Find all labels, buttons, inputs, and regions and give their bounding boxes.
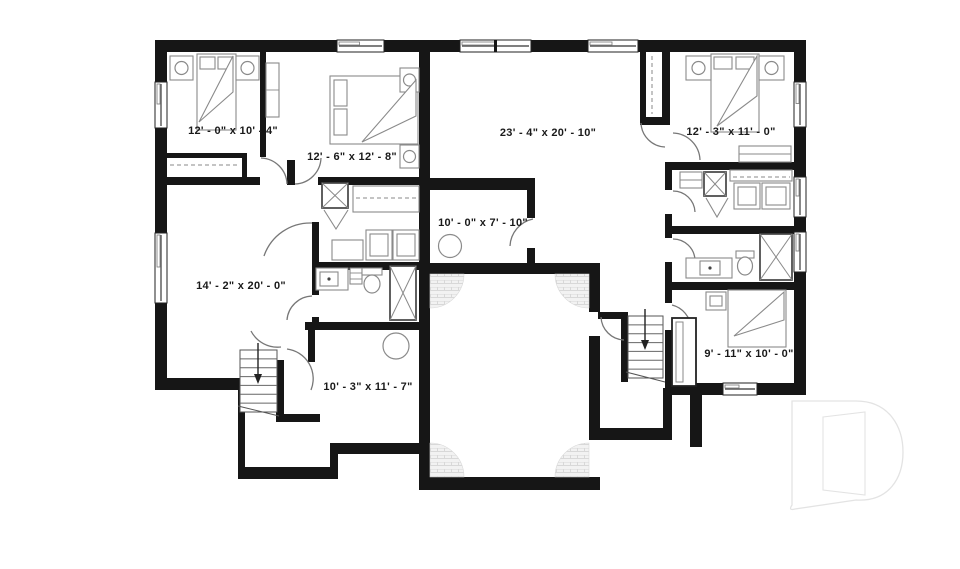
furniture [730,170,792,181]
wall [308,330,315,362]
floor-plan-drawing: 12' - 0" x 10' - 4"12' - 6" x 12' - 8"23… [0,0,960,569]
furniture [334,109,347,135]
wall [794,40,806,82]
wall [665,226,794,234]
sink-drain-dot [327,277,330,280]
furniture [766,187,786,205]
circle-fixture [383,333,409,359]
door-swing-arc [601,317,624,340]
sink-drain-dot [708,266,711,269]
window-sash [157,235,160,267]
wall [384,40,460,52]
wall [242,153,247,177]
furniture [332,240,363,260]
wall [531,40,588,52]
wall [665,330,672,388]
hatch-corner [555,274,589,308]
room-label: 12' - 6" x 12' - 8" [307,151,397,163]
wall [260,52,266,157]
wall [621,312,628,382]
wall [640,52,646,123]
furniture [710,296,722,306]
hatch-corner [430,443,464,477]
wall [155,40,337,52]
window-sash [796,179,799,196]
bifold-door [706,198,728,217]
wall [690,393,702,447]
toilet-icon [364,275,380,293]
wall [794,217,806,232]
toilet-icon [738,257,753,275]
furniture [738,187,756,205]
bifold-door [324,210,348,229]
floor-plan-page: 12' - 0" x 10' - 4"12' - 6" x 12' - 8"23… [0,0,960,569]
room-label: 10' - 0" x 7' - 10" [438,217,528,229]
circle-fixture [765,62,778,75]
wall [590,428,672,440]
wall [287,160,295,185]
wall [419,52,430,263]
hatch-corner [555,443,589,477]
door-swing-arc [287,296,312,320]
wall [640,117,670,125]
wall [155,303,167,390]
window-sash [590,42,612,45]
furniture [353,186,419,212]
furniture [397,234,415,256]
wall [419,263,600,274]
wall [276,414,320,422]
window-sash [339,42,360,45]
wall [155,40,167,82]
furniture [362,268,382,275]
wall [167,177,260,185]
circle-fixture [175,62,188,75]
wall [757,383,806,395]
window-sash [725,385,739,388]
room-label: 12' - 0" x 10' - 4" [188,125,278,137]
wall [665,282,794,290]
wall [589,336,600,440]
circle-fixture [692,62,705,75]
circle-fixture [404,151,416,163]
wall [238,467,338,479]
wall [419,178,535,190]
furniture [370,234,388,256]
wall [589,263,600,312]
wall [527,190,535,218]
wall [330,443,429,454]
wall [305,322,419,330]
wall [167,153,247,158]
wall [527,248,535,263]
wall [155,378,245,390]
room-label: 9' - 11" x 10' - 0" [704,348,793,360]
wall [419,477,600,490]
door-swing-arc [673,239,695,260]
wall [155,128,167,233]
furniture [350,268,362,284]
furniture [714,57,732,69]
room-label: 14' - 2" x 20' - 0" [196,280,286,292]
wall [663,388,672,440]
wall [638,40,806,52]
furniture [200,57,215,69]
door-swing-arc [264,223,312,256]
watermark-d-inner [823,412,865,495]
door-swing-arc [261,158,287,184]
closet-door [676,322,683,382]
room-label: 23' - 4" x 20' - 10" [500,127,596,139]
room-label: 10' - 3" x 11' - 7" [323,381,412,393]
window-sash [796,234,799,251]
wall [665,162,806,170]
room-label: 12' - 3" x 11' - 0" [686,126,775,138]
hatch-corner [430,274,464,308]
wall [419,263,430,490]
window-sash [462,42,495,45]
wall [665,170,672,190]
wall [794,272,806,393]
door-swing-arc [641,123,665,147]
window-sash [157,84,160,104]
door-swing-arc [673,191,695,212]
door-swing-arc [251,331,281,347]
circle-fixture [439,235,462,258]
wall [662,52,670,123]
circle-fixture [241,62,254,75]
window-sash [796,84,799,104]
wall [665,262,672,303]
furniture [334,80,347,106]
wall [665,214,672,238]
